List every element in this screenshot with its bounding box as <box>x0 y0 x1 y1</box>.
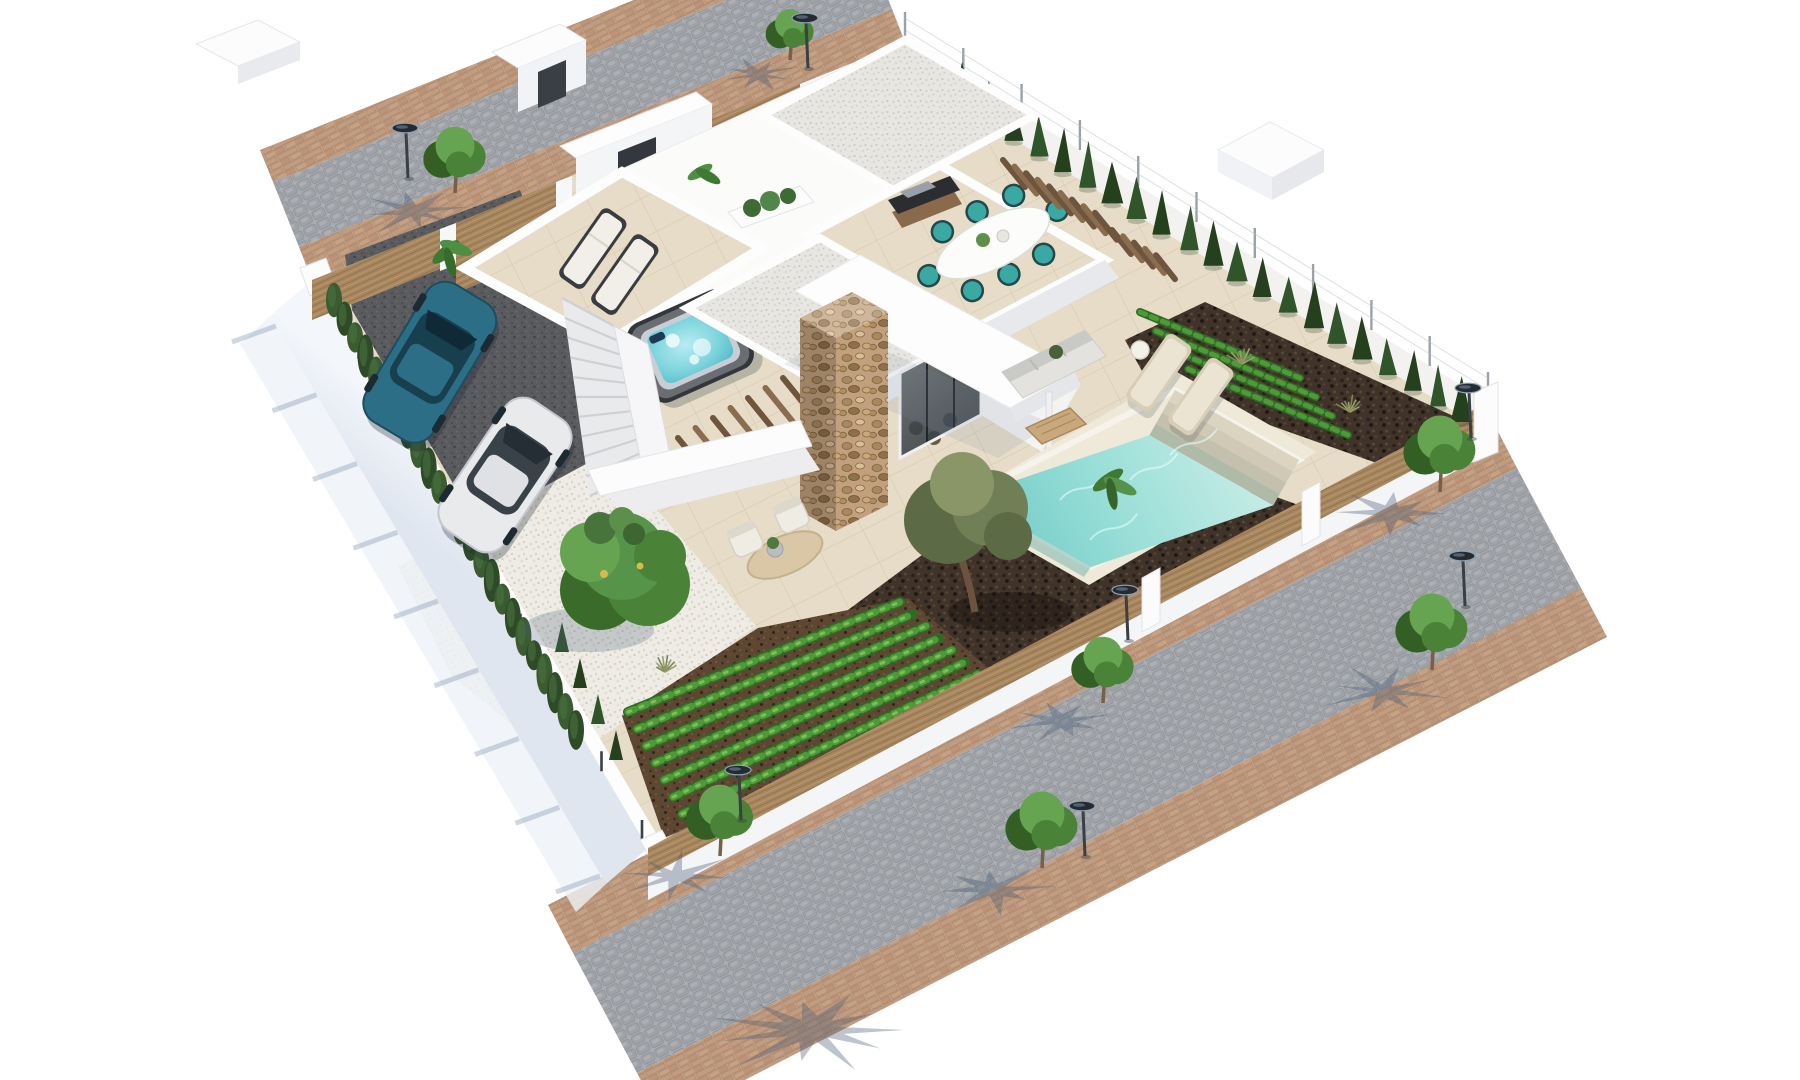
tree-canopy <box>1032 820 1062 850</box>
east-corner-pillar <box>1474 382 1498 462</box>
pool-side-table <box>1131 341 1149 359</box>
planter-shrub <box>760 191 780 211</box>
planter-shrub <box>780 188 796 204</box>
hedge-highlight <box>328 284 336 307</box>
tree-canopy <box>710 811 738 839</box>
bush <box>623 523 645 545</box>
lamp-post <box>1469 392 1471 438</box>
tree-fruit <box>600 570 608 578</box>
lamp-base-shadow <box>1461 605 1471 609</box>
lamp-post <box>1126 594 1128 640</box>
hedge-highlight <box>538 656 546 683</box>
table-bowl <box>997 230 1009 242</box>
lamp-highlight <box>796 15 808 19</box>
se-fence-pillar-1 <box>1142 568 1160 632</box>
tree-fruit <box>637 563 644 570</box>
tree-canopy <box>1430 444 1460 474</box>
hedge-highlight <box>360 338 368 367</box>
hedge-highlight <box>423 450 431 478</box>
se-fence-pillar-2 <box>1302 482 1320 546</box>
hedge-highlight <box>559 695 567 719</box>
lamp-highlight <box>1453 553 1465 557</box>
hedge-highlight <box>486 562 494 591</box>
hedge-highlight <box>549 675 557 703</box>
lamp-base-shadow <box>804 67 814 71</box>
olive-canopy <box>984 512 1032 560</box>
lamp-highlight <box>1073 803 1085 807</box>
hedge-highlight <box>433 472 441 495</box>
villa-aerial-render <box>0 0 1800 1080</box>
hedge-highlight <box>528 641 536 661</box>
table-centerpiece-plant <box>976 233 990 247</box>
nook-plant <box>767 537 779 549</box>
tree-canopy <box>1422 622 1452 652</box>
stone-feature-wall <box>800 292 888 531</box>
lamp-highlight <box>396 125 408 129</box>
sofa-plant-pot <box>1049 345 1063 359</box>
lamp-post <box>1463 560 1465 606</box>
lamp-base-shadow <box>1467 437 1477 441</box>
hedge-highlight <box>339 303 347 326</box>
render-stage <box>0 0 1800 1080</box>
lamp-base-shadow <box>1124 639 1134 643</box>
planter-shrub <box>743 199 761 217</box>
stone-wall-se-face <box>836 312 888 531</box>
lamp-base-shadow <box>737 819 747 823</box>
tree-canopy <box>783 28 803 48</box>
lamp-post <box>1083 810 1085 856</box>
tree-canopy <box>446 151 472 177</box>
hedge-highlight <box>570 713 578 740</box>
lamp-post <box>806 22 808 68</box>
hedge-highlight <box>507 600 515 627</box>
lamp-highlight <box>729 767 741 771</box>
lamp-post <box>739 774 741 820</box>
lamp-highlight <box>1116 587 1128 591</box>
olive-shadow <box>948 592 1072 632</box>
lamp-base-shadow <box>1081 855 1091 859</box>
olive-canopy <box>930 452 994 516</box>
lamp-post <box>406 132 408 178</box>
lamp-highlight <box>1459 385 1471 389</box>
tree-canopy <box>1094 661 1120 687</box>
stone-wall-shading <box>800 318 836 531</box>
hedge-highlight <box>349 323 357 343</box>
lamp-base-shadow <box>404 177 414 181</box>
hedge-highlight <box>496 585 504 606</box>
